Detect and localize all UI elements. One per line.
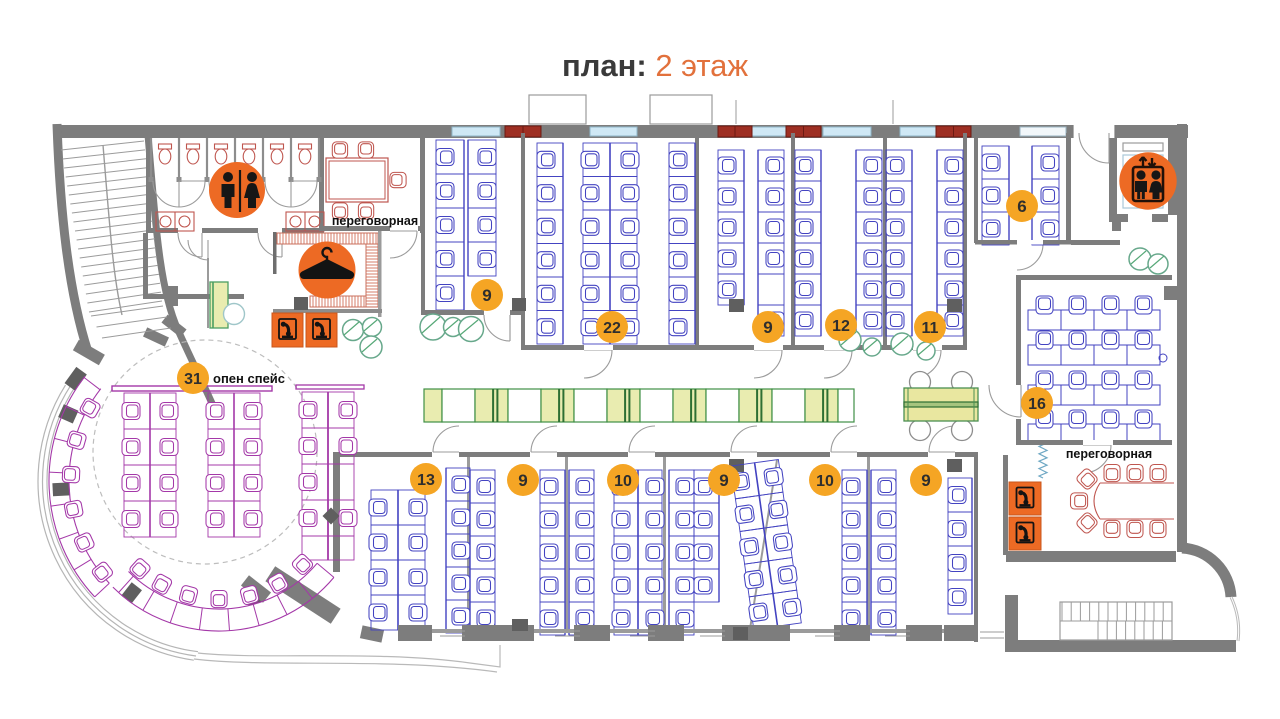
svg-text:11: 11 xyxy=(922,320,939,337)
svg-text:6: 6 xyxy=(1017,197,1026,216)
svg-text:12: 12 xyxy=(832,318,850,335)
svg-text:13: 13 xyxy=(417,472,435,489)
svg-text:опен спейс: опен спейс xyxy=(213,371,285,386)
svg-text:9: 9 xyxy=(763,318,772,337)
svg-text:план: 2 этаж: план: 2 этаж xyxy=(562,48,748,83)
svg-text:9: 9 xyxy=(482,286,491,305)
svg-text:22: 22 xyxy=(603,320,621,337)
svg-text:16: 16 xyxy=(1028,396,1046,413)
svg-text:9: 9 xyxy=(921,471,930,490)
svg-text:10: 10 xyxy=(614,473,632,490)
svg-text:9: 9 xyxy=(719,471,728,490)
svg-text:10: 10 xyxy=(816,473,834,490)
svg-text:переговорная: переговорная xyxy=(1066,447,1152,461)
svg-text:переговорная: переговорная xyxy=(332,214,418,228)
svg-text:31: 31 xyxy=(184,371,202,388)
svg-text:9: 9 xyxy=(518,471,527,490)
